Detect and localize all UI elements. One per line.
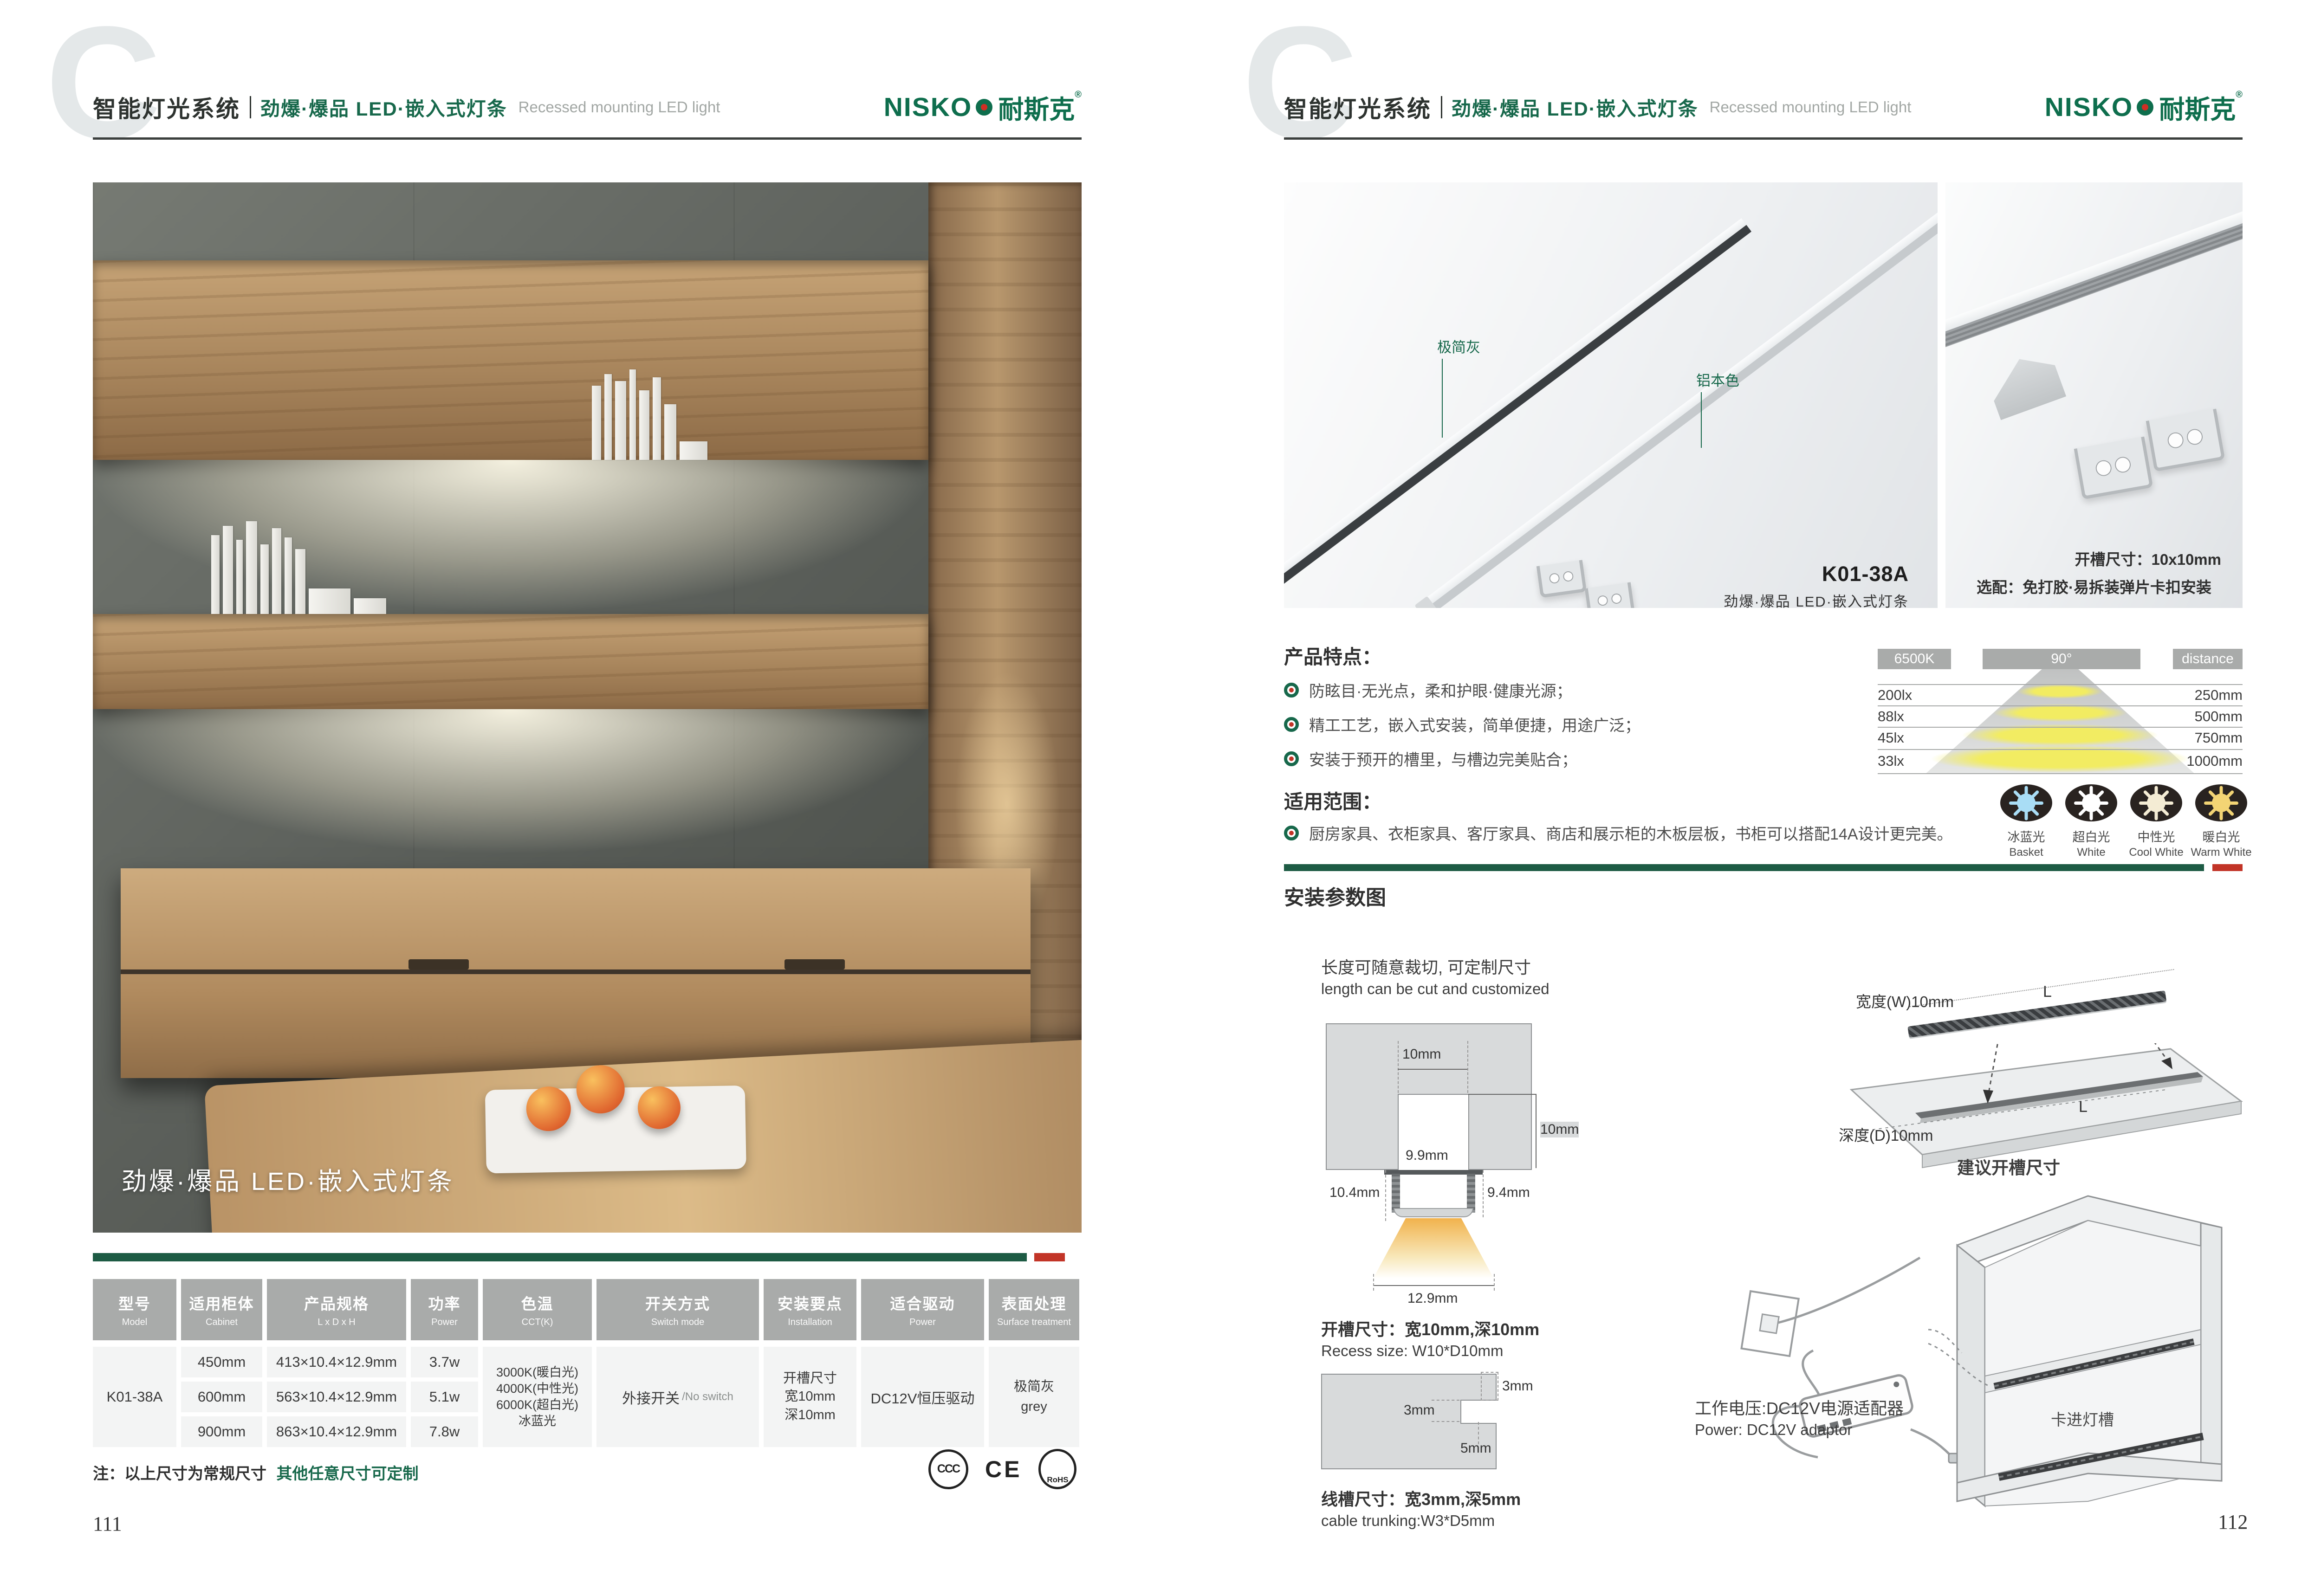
model-caption: 劲爆·爆品 LED·嵌入式灯条 (1724, 590, 1909, 608)
dim-3mm-top: 3mm (1502, 1378, 1533, 1394)
mounting-clip (1585, 582, 1635, 608)
bullet-icon (1284, 683, 1299, 698)
cell-switch: 外接开关 /No switch (596, 1347, 759, 1447)
col-power: 功率Power (411, 1279, 478, 1340)
cut-note-cn: 长度可随意裁切, 可定制尺寸 (1321, 954, 1531, 978)
lux-value: 200lx (1878, 687, 1912, 704)
power-voltage-en: Power: DC12V adaptor (1695, 1421, 1852, 1439)
mounting-clip (1537, 560, 1587, 598)
dim-top: 10mm (1402, 1047, 1441, 1062)
dim-right: 9.4mm (1487, 1185, 1530, 1201)
power-voltage-cn: 工作电压:DC12V电源适配器 (1695, 1395, 1904, 1419)
bullet-icon (1284, 826, 1299, 840)
cell-cabinet: 450mm (181, 1347, 262, 1377)
col-installation: 安装要点Installation (764, 1279, 856, 1340)
light-color-swatch: 中性光 Cool White (2121, 784, 2191, 859)
dim-3mm-left: 3mm (1404, 1402, 1435, 1418)
cell-model: K01-38A (93, 1347, 176, 1447)
cell-driver: DC12V恒压驱动 (861, 1347, 984, 1447)
header-rule (1284, 137, 2243, 140)
dim-bottom: 12.9mm (1407, 1291, 1458, 1306)
cut-note-en: length can be cut and customized (1321, 980, 1549, 998)
lux-value: 33lx (1878, 753, 1904, 769)
logo-dot-icon (976, 99, 992, 116)
chart-header-cct: 6500K (1878, 649, 1951, 669)
scope-title: 适用范围： (1284, 786, 1381, 814)
rohs-cert-icon: RoHS (1038, 1449, 1076, 1489)
distance-value: 750mm (2195, 730, 2243, 746)
light-pool (1990, 704, 2130, 722)
photo-overlay-title: 劲爆·爆品 LED·嵌入式灯条 (122, 1161, 454, 1197)
light-color-swatch: 冰蓝光 Basket (1991, 784, 2061, 859)
light-pool (2016, 684, 2104, 699)
recess-size-en: Recess size: W10*D10mm (1321, 1342, 1503, 1360)
trunk-size-cn: 线槽尺寸：宽3mm,深5mm (1321, 1486, 1521, 1510)
option-caption: 选配：免打胶·易拆装弹片卡扣安装 (1959, 575, 2229, 597)
chart-header-angle: 90° (1983, 649, 2140, 669)
series-title: 劲爆·爆品 LED·嵌入式灯条 (260, 93, 507, 122)
scope-item: 厨房家具、衣柜家具、客厅家具、商店和展示柜的木板层板，书柜可以搭配14A设计更完… (1284, 821, 1953, 844)
table-note: 注：以上尺寸为常规尺寸 其他任意尺寸可定制 (93, 1461, 418, 1484)
page-header: 智能灯光系统 劲爆·爆品 LED·嵌入式灯条 Recessed mounting… (93, 90, 1082, 124)
led-glow (93, 709, 928, 885)
sun-icon (2203, 785, 2239, 821)
profile-section (1392, 1170, 1475, 1217)
registered-mark: ® (2236, 90, 2243, 100)
power-adapter-illustration (1702, 1253, 1962, 1476)
lux-value: 88lx (1878, 708, 1904, 725)
spec-table-header: 型号Model 适用柜体Cabinet 产品规格L x D x H 功率Powe… (93, 1279, 1079, 1340)
profile-end-foot (1984, 349, 2067, 420)
series-title: 劲爆·爆品 LED·嵌入式灯条 (1452, 93, 1699, 122)
page-right: C 智能灯光系统 劲爆·爆品 LED·嵌入式灯条 Recessed mounti… (1168, 0, 2321, 1596)
series-subtitle-en: Recessed mounting LED light (1710, 98, 1912, 116)
cell-spec: 563×10.4×12.9mm (267, 1382, 406, 1412)
cell-power: 7.8w (411, 1416, 478, 1447)
cross-section-diagram: 10mm 10mm 9.9mm 10.4mm 9.4mm 12.9mm (1321, 1014, 1590, 1313)
sideboard (121, 868, 1031, 1078)
ccc-cert-icon: CCC (928, 1449, 968, 1489)
light-distribution-chart: 6500K 90° distance 200lx 88lx 45lx 33lx … (1878, 649, 2243, 859)
ce-cert-icon: CE (985, 1456, 1022, 1483)
books (592, 355, 707, 460)
lifestyle-photo: 劲爆·爆品 LED·嵌入式灯条 (93, 182, 1082, 1233)
install-section-title: 安装参数图 (1284, 881, 1386, 911)
header-divider (250, 96, 251, 118)
features-title: 产品特点： (1284, 641, 1381, 670)
distance-value: 250mm (2195, 687, 2243, 704)
cabinet-groove-label: 卡进灯槽 (2051, 1407, 2114, 1430)
slot-size-caption: 开槽尺寸：10x10mm (2075, 547, 2221, 569)
sun-icon (2073, 785, 2109, 821)
cabinet-install-diagram (1925, 1176, 2245, 1524)
cell-spec: 413×10.4×12.9mm (267, 1347, 406, 1377)
cell-cct: 3000K(暖白光) 4000K(中性光) 6000K(超白光) 冰蓝光 (483, 1347, 592, 1447)
cell-cabinet: 900mm (181, 1416, 262, 1447)
cell-surface: 极简灰 grey (989, 1347, 1079, 1447)
distance-value: 500mm (2195, 708, 2243, 725)
recess-size-cn: 开槽尺寸：宽10mm,深10mm (1321, 1316, 1539, 1340)
feature-item: 精工工艺，嵌入式安装，简单便捷，用途广泛； (1284, 713, 1640, 736)
col-cabinet: 适用柜体Cabinet (181, 1279, 262, 1340)
wood-shelf-top (93, 260, 928, 460)
dim-depth: 10mm (1540, 1122, 1579, 1137)
bullet-icon (1284, 751, 1299, 766)
feature-item: 防眩目·无光点，柔和护眼·健康光源； (1284, 678, 1572, 701)
trunk-cut (1460, 1400, 1497, 1424)
product-photo-detail: 开槽尺寸：10x10mm 选配：免打胶·易拆装弹片卡扣安装 (1945, 182, 2243, 608)
distance-value: 1000mm (2186, 753, 2243, 769)
trunk-size-en: cable trunking:W3*D5mm (1321, 1512, 1495, 1530)
cell-cabinet: 600mm (181, 1382, 262, 1412)
brand-cn: 耐斯克 (2159, 89, 2236, 126)
system-title: 智能灯光系统 (93, 90, 240, 124)
col-driver: 适合驱动Power (861, 1279, 984, 1340)
brand-latin: NISKO (884, 92, 972, 123)
series-subtitle-en: Recessed mounting LED light (519, 98, 720, 116)
model-code: K01-38A (1822, 562, 1909, 586)
brand-logo: NISKO 耐斯克 ® (2045, 89, 2243, 126)
sun-icon (2138, 785, 2174, 821)
width-label: 宽度(W)10mm (1856, 989, 1954, 1012)
dim-left: 10.4mm (1329, 1185, 1380, 1201)
col-spec: 产品规格L x D x H (267, 1279, 406, 1340)
cell-power: 3.7w (411, 1347, 478, 1377)
cable-trunk-diagram: 3mm 3mm 5mm (1321, 1368, 1525, 1475)
cell-spec: 863×10.4×12.9mm (267, 1416, 406, 1447)
separator-bar (1284, 864, 2243, 871)
wood-shelf-middle (93, 614, 928, 709)
page-left: C 智能灯光系统 劲爆·爆品 LED·嵌入式灯条 Recessed mounti… (0, 0, 1168, 1596)
books (211, 513, 386, 614)
cell-installation: 开槽尺寸 宽10mm 深10mm (764, 1347, 856, 1447)
logo-dot-icon (2137, 99, 2153, 116)
cell-power: 5.1w (411, 1382, 478, 1412)
brand-logo: NISKO 耐斯克 ® (884, 89, 1082, 126)
sun-icon (2008, 785, 2044, 821)
length-label: L (2043, 983, 2052, 1001)
mounting-clip (2146, 408, 2225, 472)
page-header: 智能灯光系统 劲爆·爆品 LED·嵌入式灯条 Recessed mounting… (1284, 90, 2243, 124)
col-switch: 开关方式Switch mode (596, 1279, 759, 1340)
header-rule (93, 137, 1082, 140)
length-label: L (2079, 1098, 2088, 1116)
page-number: 112 (2218, 1510, 2248, 1534)
separator-bar (93, 1253, 1082, 1261)
col-surface: 表面处理Surface treatment (989, 1279, 1079, 1340)
registered-mark: ® (1075, 90, 1082, 100)
light-color-swatch: 暖白光 Warm White (2186, 784, 2256, 859)
col-cct: 色温CCT(K) (483, 1279, 592, 1340)
catalog-spread: C 智能灯光系统 劲爆·爆品 LED·嵌入式灯条 Recessed mounti… (0, 0, 2321, 1596)
bullet-icon (1284, 717, 1299, 732)
header-divider (1441, 96, 1442, 118)
feature-item: 安装于预开的槽里，与槽边完美贴合； (1284, 747, 1577, 770)
spec-table-body: K01-38A 450mm 413×10.4×12.9mm 3.7w 600mm… (93, 1347, 1079, 1447)
page-number: 111 (93, 1512, 122, 1536)
certifications: CCC CE RoHS (928, 1449, 1076, 1489)
dim-5mm: 5mm (1460, 1441, 1491, 1456)
col-model: 型号Model (93, 1279, 176, 1340)
light-color-swatch: 超白光 White (2056, 784, 2126, 859)
system-title: 智能灯光系统 (1284, 90, 1432, 124)
brand-cn: 耐斯克 (998, 89, 1075, 126)
product-photo-main: 极简灰 铝本色 K01-38A 劲爆·爆品 LED·嵌入式灯条 (1284, 182, 1938, 608)
aluminum-profile (1945, 187, 2243, 361)
dim-inner: 9.9mm (1406, 1148, 1448, 1163)
depth-label: 深度(D)10mm (1839, 1123, 1933, 1145)
color-label-aluminum: 铝本色 (1696, 369, 1739, 390)
mounting-clip (2074, 436, 2153, 499)
chart-header-distance: distance (2173, 649, 2243, 669)
led-strip-aluminum (1417, 188, 1938, 608)
board-caption: 建议开槽尺寸 (1957, 1154, 2060, 1179)
light-beam (1373, 1218, 1494, 1279)
color-label-grey: 极简灰 (1437, 336, 1480, 356)
lux-value: 45lx (1878, 730, 1904, 746)
brand-latin: NISKO (2045, 92, 2133, 123)
